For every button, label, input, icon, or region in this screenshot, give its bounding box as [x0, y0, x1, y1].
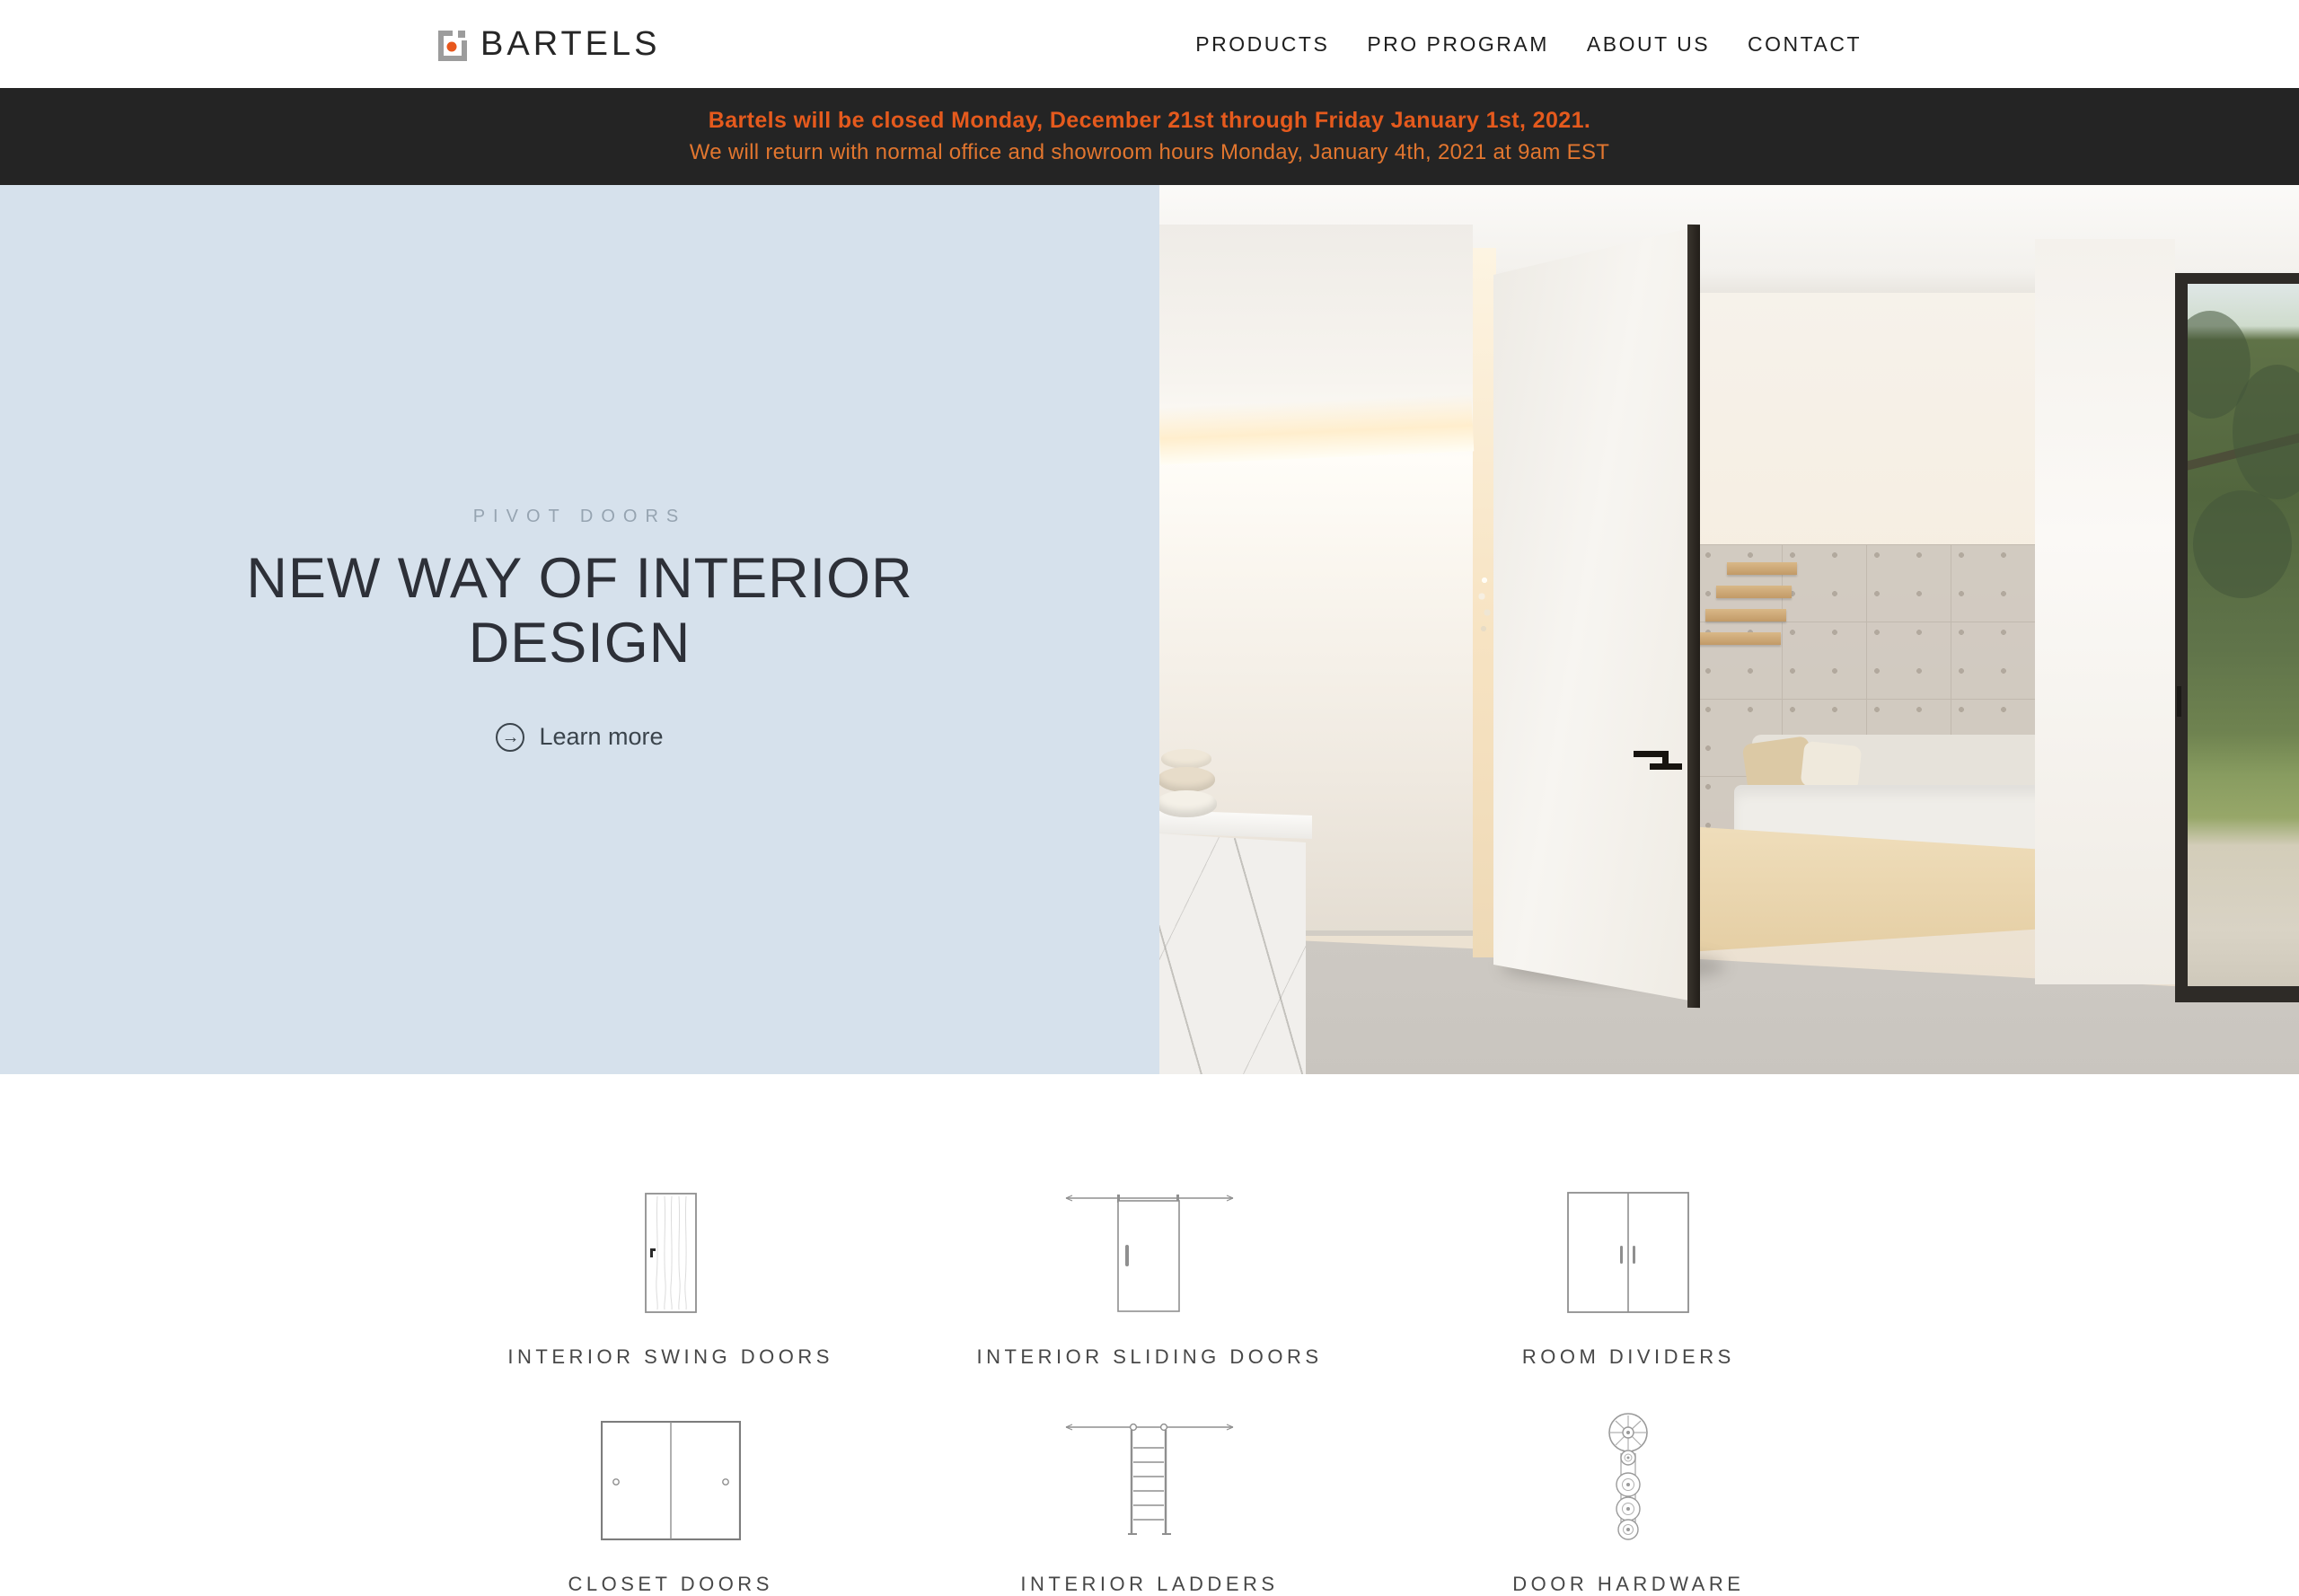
main-nav: PRODUCTS PRO PROGRAM ABOUT US CONTACT [1195, 32, 1862, 57]
nav-item-products[interactable]: PRODUCTS [1195, 32, 1329, 57]
photo-bowl [1159, 790, 1217, 817]
photo-stair-step [1695, 632, 1781, 645]
photo-pivot-door [1493, 185, 1700, 1074]
category-door-hardware[interactable]: DOOR HARDWARE [1389, 1419, 1868, 1596]
photo-glass-door [2175, 273, 2299, 1002]
brand-logo-icon [437, 28, 468, 61]
category-closet-doors[interactable]: CLOSET DOORS [431, 1419, 910, 1596]
photo-stair-step [1716, 586, 1792, 598]
nav-item-pro-program[interactable]: PRO PROGRAM [1367, 32, 1549, 57]
nav-item-about-us[interactable]: ABOUT US [1587, 32, 1710, 57]
nav-item-contact[interactable]: CONTACT [1748, 32, 1862, 57]
photo-marble-island [1159, 833, 1306, 1074]
photo-right-wall [2035, 239, 2175, 984]
category-interior-sliding-doors[interactable]: INTERIOR SLIDING DOORS [910, 1192, 1388, 1369]
photo-chandelier [1473, 571, 1496, 639]
header: BARTELS PRODUCTS PRO PROGRAM ABOUT US CO… [0, 0, 2299, 88]
door-hardware-icon [1606, 1419, 1651, 1540]
photo-pillow [1801, 741, 1863, 791]
category-label: ROOM DIVIDERS [1522, 1345, 1735, 1369]
category-interior-swing-doors[interactable]: INTERIOR SWING DOORS [431, 1192, 910, 1369]
announcement-line-2: We will return with normal office and sh… [690, 140, 1610, 165]
photo-pivot-door-edge [1687, 225, 1700, 1008]
photo-door-handle [1662, 751, 1669, 770]
category-interior-ladders[interactable]: INTERIOR LADDERS [910, 1419, 1388, 1596]
category-label: INTERIOR SLIDING DOORS [976, 1345, 1322, 1369]
category-room-dividers[interactable]: ROOM DIVIDERS [1389, 1192, 1868, 1369]
arrow-right-circle-icon: → [496, 723, 524, 752]
brand-logo[interactable]: BARTELS [437, 25, 660, 64]
product-categories-section: INTERIOR SWING DOORS INTERIOR SLIDING DO… [0, 1074, 2299, 1594]
brand-name: BARTELS [480, 25, 660, 64]
swing-door-icon [645, 1192, 697, 1313]
category-label: INTERIOR LADDERS [1020, 1573, 1278, 1596]
hero-title: NEW WAY OF INTERIOR DESIGN [0, 547, 1159, 676]
closet-door-icon [601, 1419, 741, 1540]
hero-eyebrow: PIVOT DOORS [0, 507, 1159, 527]
announcement-banner: Bartels will be closed Monday, December … [0, 88, 2299, 185]
hero-photo [1159, 185, 2299, 1074]
sliding-door-icon [1064, 1192, 1235, 1313]
hero-section: PIVOT DOORS NEW WAY OF INTERIOR DESIGN →… [0, 185, 2299, 1074]
category-label: CLOSET DOORS [568, 1573, 772, 1596]
announcement-line-1: Bartels will be closed Monday, December … [709, 108, 1590, 134]
room-divider-icon [1567, 1192, 1689, 1313]
hero-text-panel: PIVOT DOORS NEW WAY OF INTERIOR DESIGN →… [0, 185, 1159, 1074]
learn-more-label: Learn more [539, 723, 663, 751]
photo-stair-step [1727, 562, 1797, 575]
category-label: INTERIOR SWING DOORS [507, 1345, 833, 1369]
photo-bowl [1161, 749, 1211, 769]
photo-bowl [1159, 767, 1215, 792]
photo-stair-step [1705, 609, 1786, 622]
learn-more-link[interactable]: → Learn more [496, 723, 663, 752]
category-label: DOOR HARDWARE [1512, 1573, 1744, 1596]
ladder-icon [1064, 1419, 1235, 1540]
